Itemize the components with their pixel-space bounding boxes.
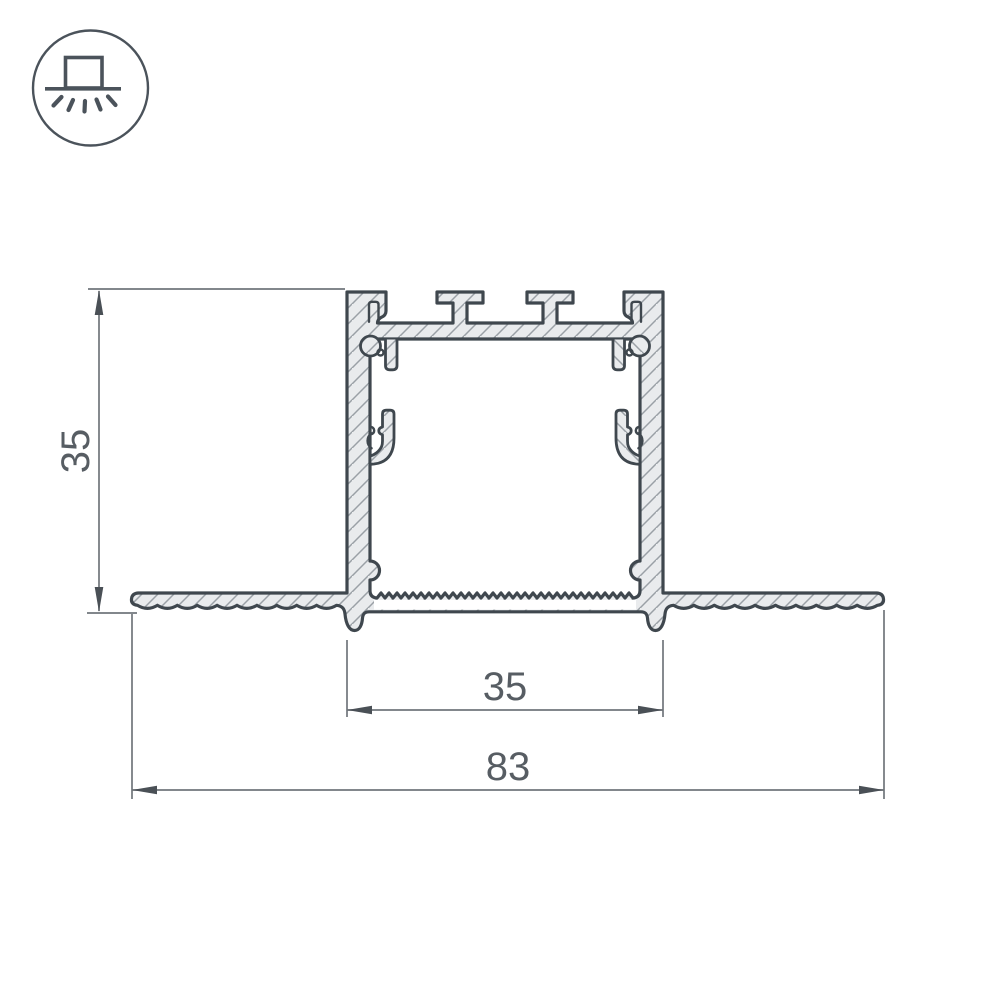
- screw-boss-upper-finger: [386, 340, 398, 370]
- fixture-box-icon: [66, 58, 103, 89]
- recessed-light-icon: [33, 31, 148, 146]
- arrowhead-up: [95, 290, 104, 315]
- light-rays-icon: [54, 97, 116, 112]
- arrowhead-down: [95, 587, 104, 612]
- diffuser-strip-face: [374, 600, 636, 610]
- dimension-height-label: 35: [54, 429, 98, 474]
- arrowhead-left: [347, 706, 372, 715]
- dimension-inner-width: 35: [347, 640, 663, 717]
- technical-drawing: 35 35 83: [0, 0, 1000, 1000]
- dimension-inner-width-label: 35: [483, 665, 528, 709]
- arrowhead-right: [638, 706, 663, 715]
- profile-inner-cavity: [370, 339, 640, 598]
- profile-cross-section: [131, 292, 883, 631]
- dimension-height: 35: [54, 289, 345, 613]
- dimension-overall-width-label: 83: [486, 745, 531, 789]
- arrowhead-right: [859, 786, 884, 795]
- arrowhead-left: [132, 786, 157, 795]
